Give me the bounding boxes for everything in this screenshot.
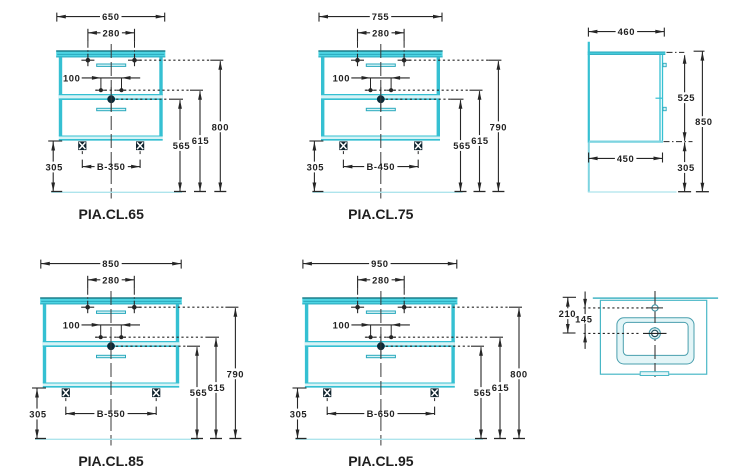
svg-text:145: 145 (575, 313, 592, 324)
svg-text:100: 100 (63, 319, 80, 330)
svg-text:305: 305 (290, 409, 307, 420)
svg-text:460: 460 (618, 26, 635, 37)
svg-text:850: 850 (102, 258, 119, 269)
svg-text:B-550: B-550 (97, 408, 126, 419)
svg-text:950: 950 (371, 258, 388, 269)
svg-text:280: 280 (372, 27, 389, 38)
svg-text:450: 450 (617, 153, 634, 164)
svg-text:280: 280 (102, 27, 119, 38)
svg-text:305: 305 (677, 162, 694, 173)
svg-text:755: 755 (372, 11, 389, 22)
svg-text:B-650: B-650 (367, 408, 396, 419)
svg-text:790: 790 (227, 368, 244, 379)
svg-text:210: 210 (559, 308, 576, 319)
svg-text:565: 565 (173, 140, 190, 151)
svg-text:800: 800 (212, 121, 229, 132)
svg-text:PIA.CL.75: PIA.CL.75 (348, 206, 414, 222)
svg-text:565: 565 (453, 140, 470, 151)
svg-text:790: 790 (490, 121, 507, 132)
svg-text:305: 305 (45, 162, 62, 173)
svg-text:100: 100 (63, 72, 80, 83)
svg-text:525: 525 (678, 92, 695, 103)
svg-text:PIA.CL.95: PIA.CL.95 (348, 453, 414, 469)
svg-text:B-450: B-450 (367, 161, 396, 172)
svg-text:565: 565 (190, 387, 207, 398)
svg-text:100: 100 (333, 72, 350, 83)
svg-text:280: 280 (102, 274, 119, 285)
svg-text:565: 565 (474, 387, 491, 398)
svg-text:615: 615 (192, 135, 209, 146)
svg-text:PIA.CL.85: PIA.CL.85 (78, 453, 144, 469)
svg-text:650: 650 (102, 11, 119, 22)
svg-text:305: 305 (307, 162, 324, 173)
svg-text:280: 280 (372, 274, 389, 285)
svg-text:850: 850 (695, 116, 712, 127)
svg-text:305: 305 (29, 409, 46, 420)
svg-text:PIA.CL.65: PIA.CL.65 (79, 206, 145, 222)
svg-text:100: 100 (333, 319, 350, 330)
svg-text:800: 800 (510, 368, 527, 379)
svg-text:615: 615 (492, 382, 509, 393)
svg-text:B-350: B-350 (97, 161, 126, 172)
svg-text:615: 615 (208, 382, 225, 393)
svg-text:615: 615 (471, 135, 488, 146)
